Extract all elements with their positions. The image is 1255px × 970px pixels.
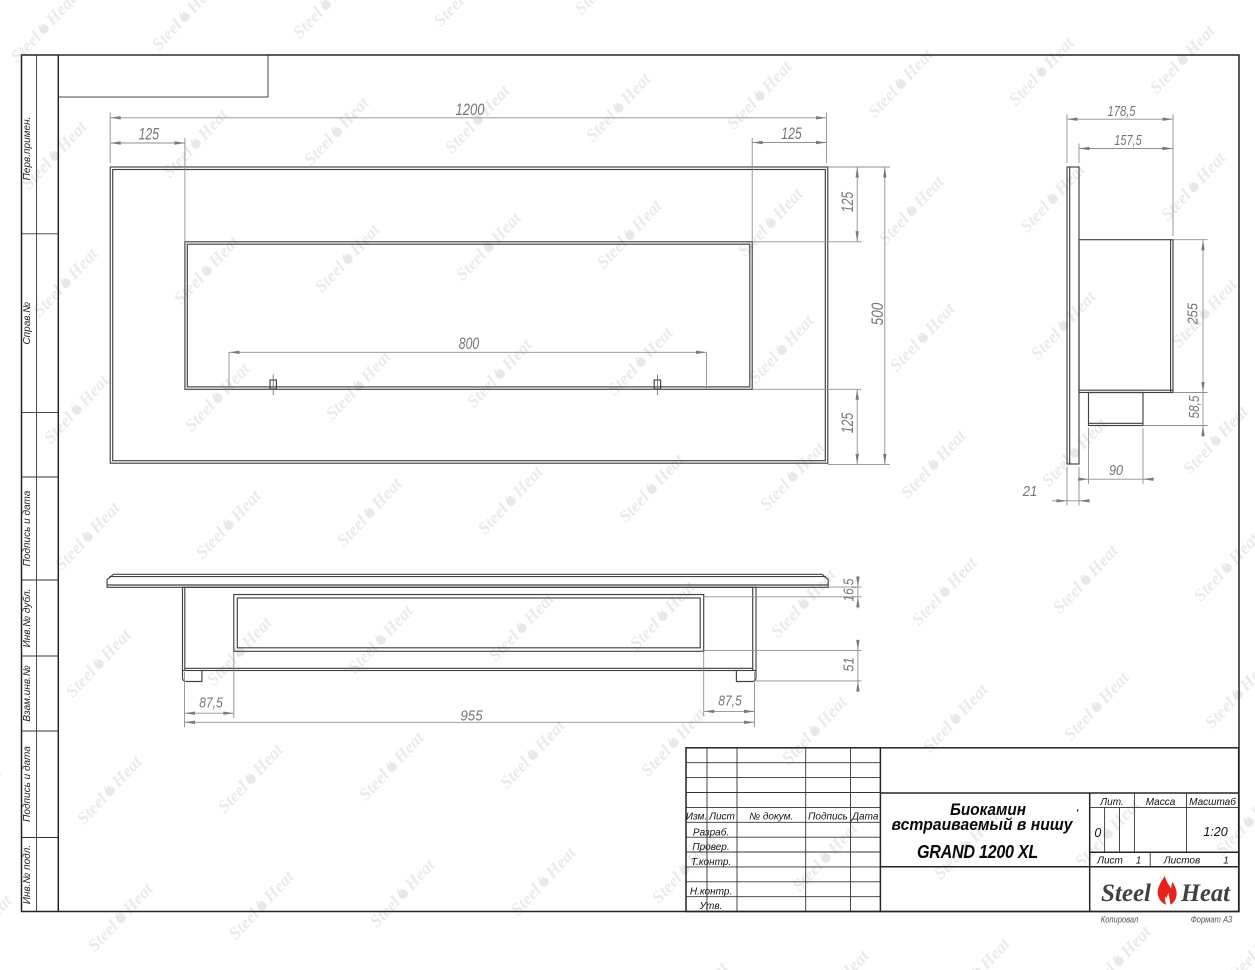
svg-text:Формат А3: Формат А3 [1191,914,1233,924]
svg-text:Листов: Листов [1163,856,1200,867]
svg-text:Heat: Heat [529,715,569,756]
svg-text:Heat: Heat [333,92,373,133]
svg-text:Steel: Steel [180,396,219,435]
svg-text:1: 1 [1136,856,1142,867]
svg-text:Heat: Heat [670,703,710,744]
svg-text:Steel: Steel [202,650,241,689]
svg-text:Steel: Steel [354,765,393,804]
svg-text:Steel: Steel [1189,566,1228,605]
svg-text:Heat: Heat [1082,540,1122,581]
svg-text:Steel: Steel [310,257,349,296]
svg-text:Heat: Heat [1038,32,1078,73]
svg-text:Heat: Heat [756,56,796,97]
svg-text:Steel: Steel [1200,693,1239,732]
svg-text:Heat: Heat [62,243,102,284]
svg-text:Копировал: Копировал [1101,914,1139,924]
svg-text:Heat: Heat [659,576,699,617]
svg-text:90: 90 [1109,463,1123,479]
svg-text:Лист: Лист [708,812,735,823]
svg-text:Steel: Steel [1015,197,1054,236]
svg-text:Heat: Heat [247,739,287,780]
svg-text:Steel: Steel [1222,947,1255,970]
svg-text:Дата: Дата [851,812,879,823]
svg-text:Heat: Heat [930,425,970,466]
svg-text:Heat: Heat [1180,880,1231,907]
svg-text:Steel: Steel [224,904,263,943]
svg-text:1:20: 1:20 [1203,825,1227,839]
svg-text:Steel: Steel [440,118,479,157]
svg-text:Steel: Steel [462,372,501,411]
svg-text:Лист: Лист [1096,856,1123,867]
svg-text:Лит.: Лит. [1099,797,1123,808]
svg-text:125: 125 [838,191,857,212]
svg-text:58,5: 58,5 [1187,395,1203,419]
svg-text:№ докум.: № докум. [749,812,793,823]
svg-text:Heat: Heat [258,866,298,907]
svg-text:Heat: Heat [399,854,439,895]
svg-text:Heat: Heat [496,334,536,375]
svg-text:Heat: Heat [388,727,428,768]
svg-text:Steel: Steel [722,94,761,133]
svg-text:Steel: Steel [213,777,252,816]
svg-text:Steel: Steel [788,856,827,895]
svg-text:Heat: Heat [344,219,384,260]
svg-text:Steel: Steel [1026,324,1065,363]
svg-text:Heat: Heat [637,322,677,363]
svg-text:встраиваемый в нишу: встраиваемый в нишу [892,816,1074,834]
svg-text:Heat: Heat [778,310,818,351]
svg-text:Steel: Steel [506,880,545,919]
svg-text:Heat: Heat [919,298,959,339]
svg-text:Изм.: Изм. [686,812,707,823]
svg-text:Heat: Heat [974,933,1014,970]
svg-text:Steel: Steel [1048,578,1087,617]
svg-text:16,5: 16,5 [841,578,857,602]
svg-text:Heat: Heat [800,564,840,605]
svg-text:Heat: Heat [117,878,157,919]
svg-text:Steel: Steel [766,602,805,641]
svg-text:Steel: Steel [1004,70,1043,109]
svg-text:Steel: Steel [1101,880,1151,907]
svg-text:Steel: Steel [495,753,534,792]
svg-text:Heat: Heat [1093,667,1133,708]
svg-text:Heat: Heat [73,370,113,411]
svg-text:Взам.инв.№: Взам.инв.№ [22,665,33,721]
svg-text:178,5: 178,5 [1108,104,1137,120]
svg-text:1200: 1200 [456,100,485,119]
svg-text:Heat: Heat [377,600,417,641]
svg-text:Steel: Steel [191,523,230,562]
svg-text:Heat: Heat [615,68,655,109]
svg-text:800: 800 [459,334,480,353]
svg-text:Steel: Steel [885,336,924,375]
svg-text:Steel: Steel [636,741,675,780]
svg-text:255: 255 [1186,302,1202,325]
svg-text:Steel: Steel [918,717,957,756]
svg-text:Steel: Steel [647,868,686,907]
svg-text:Heat: Heat [789,437,829,478]
svg-text:Н.контр.: Н.контр. [690,887,732,898]
svg-text:Т.контр.: Т.контр. [691,857,731,868]
svg-text:Steel: Steel [614,487,653,526]
svg-text:Heat: Heat [1190,147,1230,188]
svg-text:Steel: Steel [896,463,935,502]
svg-text:Steel: Steel [429,0,468,30]
svg-text:Heat: Heat [952,679,992,720]
svg-text:Подпись и дата: Подпись и дата [22,746,33,822]
svg-text:Steel: Steel [570,0,609,18]
svg-text:Steel: Steel [581,106,620,145]
svg-text:Инв.№ подл.: Инв.№ подл. [22,845,33,904]
svg-text:Heat: Heat [1071,413,1111,454]
svg-text:0: 0 [1094,826,1101,840]
svg-text:125: 125 [838,412,857,433]
svg-text:Heat: Heat [1115,921,1155,962]
svg-text:Heat: Heat [214,358,254,399]
svg-text:Steel: Steel [147,15,186,54]
svg-text:157,5: 157,5 [1114,133,1142,149]
svg-text:21: 21 [1022,484,1037,500]
svg-text:Heat: Heat [225,485,265,526]
svg-text:Heat: Heat [941,552,981,593]
svg-text:Heat: Heat [811,691,851,732]
svg-text:Heat: Heat [84,497,124,538]
svg-text:Подпись и дата: Подпись и дата [22,490,33,566]
svg-text:Heat: Heat [192,104,232,145]
svg-text:Heat: Heat [1245,782,1255,823]
svg-text:Heat: Heat [40,0,80,30]
svg-text:Heat: Heat [897,44,937,85]
svg-text:Heat: Heat [626,195,666,236]
svg-text:Heat: Heat [366,473,406,514]
svg-text:Steel: Steel [863,82,902,121]
svg-text:Подпись: Подпись [808,812,848,823]
svg-text:Heat: Heat [540,842,580,883]
svg-text:Heat: Heat [0,763,5,804]
svg-text:87,5: 87,5 [718,694,742,710]
svg-text:Перв.примен.: Перв.примен. [22,117,33,181]
svg-text:51: 51 [841,657,857,672]
svg-text:Heat: Heat [1201,274,1241,315]
svg-text:GRAND 1200 XL: GRAND 1200 XL [917,842,1038,862]
svg-text:Heat: Heat [822,818,862,859]
svg-text:Инв.№ дубл.: Инв.№ дубл. [21,589,33,648]
svg-text:500: 500 [868,302,887,325]
svg-text:Steel: Steel [343,638,382,677]
svg-text:Утв.: Утв. [699,901,723,912]
svg-text:Heat: Heat [203,231,243,272]
svg-text:Heat: Heat [106,751,146,792]
svg-text:Steel: Steel [1156,185,1195,224]
svg-text:Steel: Steel [288,3,327,42]
svg-text:125: 125 [781,124,802,143]
svg-text:955: 955 [460,708,483,724]
svg-text:Steel: Steel [1059,705,1098,744]
svg-text:Steel: Steel [1145,58,1184,97]
svg-text:Справ.№: Справ.№ [22,302,33,345]
svg-text:Steel: Steel [83,916,122,955]
svg-text:87,5: 87,5 [199,695,223,711]
svg-text:Steel: Steel [61,662,100,701]
svg-text:Steel: Steel [592,233,631,272]
svg-text:': ' [1076,807,1079,821]
svg-text:Steel: Steel [451,245,490,284]
svg-text:Heat: Heat [648,449,688,490]
svg-text:Heat: Heat [833,945,873,970]
svg-text:Heat: Heat [0,890,16,931]
svg-text:Масса: Масса [1146,797,1176,808]
svg-text:1: 1 [1223,856,1229,867]
svg-text:Steel: Steel [332,511,371,550]
svg-text:Разраб.: Разраб. [693,826,729,838]
svg-text:Heat: Heat [51,116,91,157]
svg-text:Steel: Steel [484,626,523,665]
svg-text:Heat: Heat [95,624,135,665]
svg-text:Steel: Steel [50,535,89,574]
svg-text:Steel: Steel [1178,439,1217,478]
svg-text:125: 125 [139,125,160,144]
svg-text:Steel: Steel [72,789,111,828]
svg-text:Heat: Heat [692,957,732,970]
svg-text:Steel: Steel [874,209,913,248]
svg-text:Steel: Steel [6,27,45,66]
svg-text:Steel: Steel [299,130,338,169]
svg-text:Heat: Heat [767,183,807,224]
svg-text:Steel: Steel [28,281,67,320]
svg-text:Heat: Heat [507,461,547,502]
svg-text:Heat: Heat [1212,401,1252,442]
svg-text:Steel: Steel [169,269,208,308]
svg-text:Steel: Steel [755,475,794,514]
svg-text:Steel: Steel [603,360,642,399]
svg-text:Масштаб: Масштаб [1189,796,1236,808]
svg-text:Steel: Steel [907,590,946,629]
svg-text:Heat: Heat [908,171,948,212]
svg-text:Провер.: Провер. [692,842,729,853]
svg-text:Heat: Heat [236,612,276,653]
svg-text:Steel: Steel [473,499,512,538]
svg-text:Heat: Heat [1234,655,1255,696]
svg-text:Steel: Steel [158,142,197,181]
